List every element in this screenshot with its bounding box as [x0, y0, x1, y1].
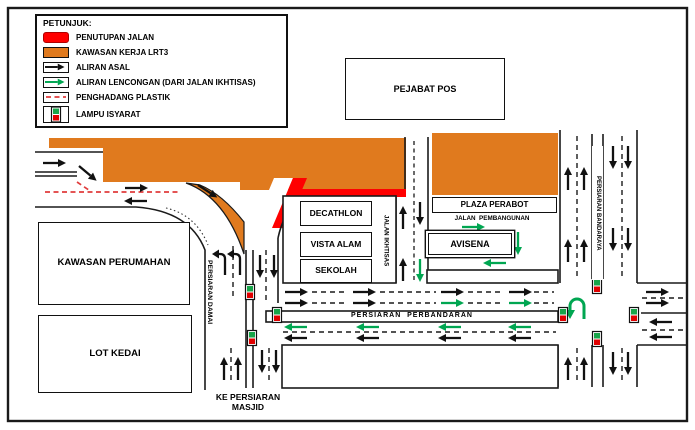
- road-label-persiaran-damai: PERSIARAN DAMAI: [202, 240, 216, 345]
- legend-item-plastic-barrier: PENGHADANG PLASTIK: [43, 91, 284, 103]
- traffic-light-swatch: [43, 106, 69, 123]
- building-lot-kedai: LOT KEDAI: [38, 315, 192, 393]
- traffic-light-icon: [246, 285, 255, 300]
- green-arrow-swatch: [43, 77, 69, 88]
- road-label-persiaran-perbandaran: PERSIARAN PERBANDARAN: [266, 311, 558, 322]
- road-label-jalan-ikhtisas: JALAN IKHTISAS: [378, 198, 394, 284]
- traffic-light-icon: [46, 106, 66, 123]
- legend-item-original-flow: ALIRAN ASAL: [43, 61, 284, 73]
- legend-item-traffic-light: LAMPU ISYARAT: [43, 106, 284, 123]
- traffic-light-icon: [593, 279, 602, 294]
- legend-label: ALIRAN ASAL: [76, 63, 130, 72]
- road-closure-swatch: [43, 32, 69, 43]
- work-zone-swatch: [43, 47, 69, 58]
- traffic-diversion-map: PEJABAT POS KAWASAN PERUMAHAN LOT KEDAI …: [0, 0, 695, 430]
- building-sekolah: SEKOLAH: [300, 259, 372, 283]
- building-decathlon: DECATHLON: [300, 201, 372, 226]
- building-pejabat-pos: PEJABAT POS: [345, 58, 505, 120]
- legend-title: PETUNJUK:: [43, 18, 284, 28]
- plastic-barrier-line: [45, 182, 178, 192]
- red-dash-icon: [45, 92, 67, 102]
- building-vista-alam: VISTA ALAM: [300, 232, 372, 257]
- legend-item-diverted-flow: ALIRAN LENCONGAN (DARI JALAN IKHTISAS): [43, 76, 284, 88]
- traffic-light-icon: [559, 308, 568, 323]
- building-plaza-perabot: PLAZA PERABOT: [432, 197, 557, 213]
- barrier-swatch: [43, 92, 69, 103]
- traffic-light-icon: [248, 331, 257, 346]
- traffic-light-icon: [593, 332, 602, 347]
- building-avisena: AVISENA: [428, 233, 512, 255]
- green-arrow-icon: [45, 77, 67, 87]
- road-label-persiaran-bandaraya: PERSIARAN BANDARAYA: [592, 146, 603, 280]
- legend-label: KAWASAN KERJA LRT3: [76, 48, 168, 57]
- legend-label: PENGHADANG PLASTIK: [76, 93, 170, 102]
- legend-label: ALIRAN LENCONGAN (DARI JALAN IKHTISAS): [76, 78, 256, 87]
- legend-label: LAMPU ISYARAT: [76, 110, 140, 119]
- traffic-light-icon: [630, 308, 639, 323]
- road-label-jalan-pembangunan: JALAN PEMBANGUNAN: [432, 214, 552, 224]
- building-kawasan-perumahan: KAWASAN PERUMAHAN: [38, 222, 190, 305]
- legend-item-closure: PENUTUPAN JALAN: [43, 31, 284, 43]
- legend-item-workzone: KAWASAN KERJA LRT3: [43, 46, 284, 58]
- legend-label: PENUTUPAN JALAN: [76, 33, 154, 42]
- legend-panel: PETUNJUK: PENUTUPAN JALAN KAWASAN KERJA …: [35, 14, 288, 128]
- black-arrow-icon: [45, 62, 67, 72]
- black-arrow-swatch: [43, 62, 69, 73]
- road-label-ke-persiaran-masjid: KE PERSIARAN MASJID: [200, 391, 296, 415]
